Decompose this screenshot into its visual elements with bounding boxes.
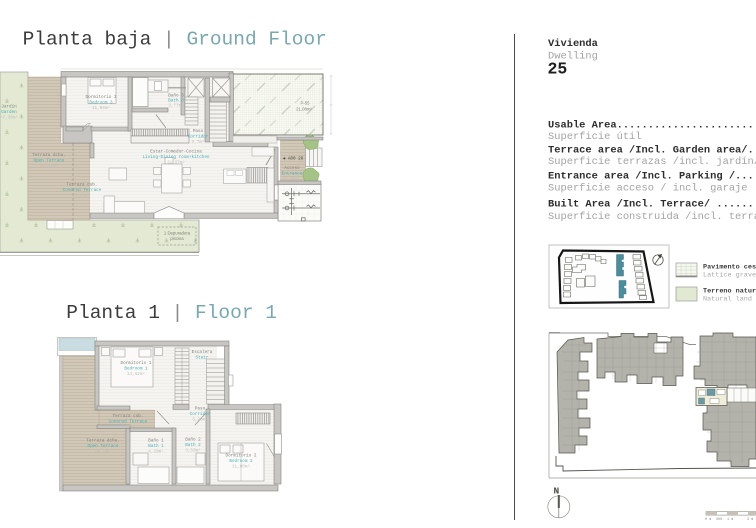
svg-text:Terrace area /Incl. Garden are: Terrace area /Incl. Garden area/........… [548,145,756,157]
svg-text:11,08m²: 11,08m² [232,464,250,470]
svg-text:Planta baja | Ground Floor: Planta baja | Ground Floor [23,29,327,51]
svg-text:Terreno natural: Terreno natural [703,288,756,296]
svg-text:Entrance area /Incl. Parking /: Entrance area /Incl. Parking /..........… [548,171,756,183]
svg-text:Dormitorio 2: Dormitorio 2 [226,454,257,459]
svg-text:Bedroom 1: Bedroom 1 [124,367,148,372]
svg-text:3 m: 3 m [747,518,753,522]
svg-text:Living-Dining room+kitchen: Living-Dining room+kitchen [142,155,209,160]
svg-text:0 m: 0 m [705,518,711,522]
svg-text:14,52m²: 14,52m² [127,371,145,377]
svg-text:Built Area /Incl. Terrace/ ...: Built Area /Incl. Terrace/ .............… [548,199,756,211]
svg-text:Stair: Stair [196,356,209,361]
svg-text:Terraza cub.: Terraza cub. [67,183,98,188]
svg-text:Escalera: Escalera [192,350,213,355]
svg-text:Bedroom 3: Bedroom 3 [89,101,113,106]
svg-text:Superficie acceso / incl. gara: Superficie acceso / incl. garaje .......… [548,183,756,195]
svg-text:Natural land: Natural land [703,296,752,304]
svg-text:P-55: P-55 [300,101,310,106]
svg-text:Jardín: Jardín [1,105,17,110]
svg-text:Paso: Paso [195,407,206,412]
svg-text:Corridor: Corridor [190,412,211,417]
svg-text:Dormitorio 1: Dormitorio 1 [121,361,152,366]
svg-text:Garden: Garden [1,110,17,115]
svg-text:8,25m²: 8,25m² [284,176,299,182]
svg-text:31,27m²: 31,27m² [167,160,185,166]
svg-text:3,61m²: 3,61m² [74,193,89,199]
svg-text:3,77m²: 3,77m² [168,103,183,109]
svg-text:Superficie construida /incl. t: Superficie construida /incl. terraza....… [548,211,756,223]
svg-text:Pavimento cesped: Pavimento cesped [703,264,756,272]
svg-text:4,29m²: 4,29m² [148,449,163,455]
svg-text:25: 25 [548,60,568,79]
svg-text:Covered Terrace: Covered Terrace [63,188,102,193]
svg-text:Planta 1 | Floor 1: Planta 1 | Floor 1 [66,302,277,324]
svg-text:Dormitorio 3: Dormitorio 3 [86,95,117,100]
svg-text:Vivienda: Vivienda [548,38,598,50]
svg-text:300: 300 [716,518,722,522]
svg-text:1 Depuradora: 1 Depuradora [164,231,191,236]
svg-text:3,23m²: 3,23m² [192,417,207,423]
svg-text:66,5m²: 66,5m² [95,449,110,455]
svg-text:Bath 2: Bath 2 [185,443,201,448]
svg-text:14,44m²: 14,44m² [40,163,58,169]
svg-text:3,7m²: 3,7m² [192,139,205,145]
svg-text:Bath 1: Bath 1 [148,444,164,449]
svg-text:Usable Area...................: Usable Area.............................… [548,120,756,132]
svg-text:Lattice gravel: Lattice gravel [703,272,756,280]
svg-text:3,53m²: 3,53m² [185,448,200,454]
svg-text:Bedroom 2: Bedroom 2 [229,459,253,464]
svg-text:11,03m²: 11,03m² [92,105,110,111]
svg-text:Baño 2: Baño 2 [185,438,201,443]
svg-text:Terraza dcha.: Terraza dcha. [32,153,66,158]
svg-text:Estar-Comedor-Cocina: Estar-Comedor-Cocina [150,150,202,155]
svg-text:N: N [554,486,560,497]
svg-text:0,97m²: 0,97m² [120,424,135,430]
svg-text:≈7,30m²: ≈7,30m² [0,115,18,121]
svg-text:Entrance: Entrance [282,172,303,177]
svg-text:Terraza dcha.: Terraza dcha. [86,439,120,444]
svg-text:Covered Terrace: Covered Terrace [109,420,148,425]
svg-text:Superficie terrazas /incl. jar: Superficie terrazas /incl. jardín/......… [548,156,756,168]
svg-text:Open Terrace: Open Terrace [88,444,119,449]
svg-text:Terraza cub.: Terraza cub. [113,414,144,419]
svg-text:1 m: 1 m [727,518,733,522]
svg-text:piscina: piscina [170,236,184,241]
svg-text:Baño 1: Baño 1 [148,439,164,444]
svg-text:21,08m²: 21,08m² [296,107,312,112]
svg-text:Paso: Paso [193,129,204,134]
svg-text:Superficie útil: Superficie útil [548,131,642,143]
svg-text:◀ A00 26: ◀ A00 26 [283,157,304,162]
svg-text:Corridor: Corridor [188,135,209,140]
svg-text:Acceso: Acceso [284,166,300,171]
svg-text:Open Terrace: Open Terrace [34,159,65,164]
